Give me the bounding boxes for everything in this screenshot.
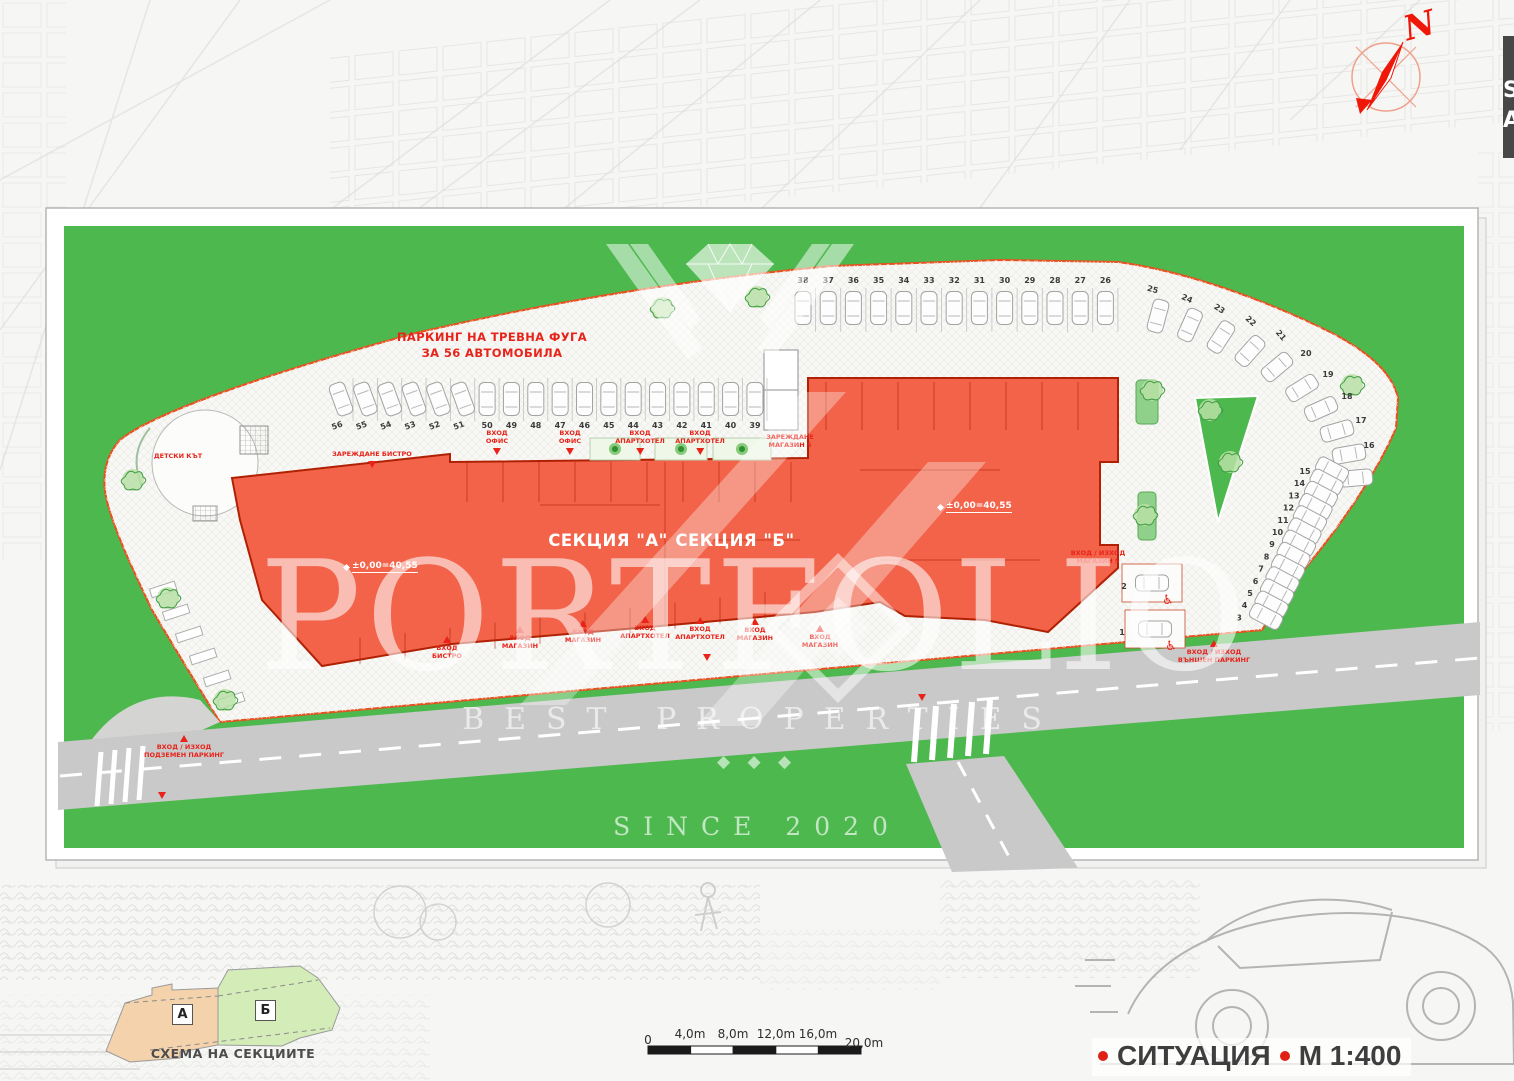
svg-text:♿: ♿: [1162, 593, 1174, 608]
svg-text:33: 33: [923, 276, 934, 285]
drawing-scale: М 1:400: [1299, 1040, 1402, 1072]
svg-text:11: 11: [1277, 516, 1289, 525]
section-b-label: СЕКЦИЯ "Б": [675, 531, 794, 550]
svg-text:10: 10: [1272, 528, 1284, 537]
schema-section-a: А: [172, 1004, 193, 1025]
bullet-icon: [1280, 1051, 1290, 1061]
svg-text:37: 37: [823, 276, 834, 285]
entrance-marker-icon: [443, 636, 451, 643]
svg-text:42: 42: [676, 421, 687, 430]
entrance-marker-icon: [636, 448, 644, 455]
svg-text:30: 30: [999, 276, 1011, 285]
entrance-marker-icon: [493, 448, 501, 455]
entrance-marker-icon: [641, 616, 649, 623]
svg-text:35: 35: [873, 276, 885, 285]
entrance-label: ВХОД БИСТРО: [432, 636, 462, 661]
entrance-label: ВХОД АПАРТХОТЕЛ: [615, 430, 665, 455]
svg-text:5: 5: [1247, 589, 1253, 598]
svg-text:4: 4: [1242, 601, 1248, 610]
entrance-label: ВХОД МАГАЗИН: [565, 620, 601, 645]
site-plan-page: 5655545352515049484746454443424140393837…: [0, 0, 1514, 1081]
svg-text:34: 34: [898, 276, 910, 285]
section-a-label: СЕКЦИЯ "А": [548, 531, 667, 550]
svg-text:29: 29: [1024, 276, 1036, 285]
drawing-title: СИТУАЦИЯ: [1117, 1040, 1271, 1072]
entrance-label: ВХОД МАГАЗИН: [737, 618, 773, 643]
parking-note: ПАРКИНГ НА ТРЕВНА ФУГА ЗА 56 АВТОМОБИЛА: [397, 330, 587, 361]
elevation-flag-icon: [937, 503, 944, 510]
scale-label: 8,0m: [718, 1027, 749, 1041]
entrance-marker-icon: [816, 625, 824, 632]
compass-icon: [1352, 42, 1420, 114]
entrance-label: ВХОД АПАРТХОТЕЛ: [675, 617, 725, 642]
entrance-marker-icon: [158, 792, 166, 799]
entrance-marker-icon: [918, 694, 926, 701]
scale-label: 4,0m: [675, 1027, 706, 1041]
loading-shop5-label: ЗАРЕЖДАНЕ МАГАЗИН 5: [766, 434, 814, 450]
svg-text:1: 1: [1119, 628, 1125, 637]
shop5-entrance-label: ВХОД / ИЗХОД МАГАЗИН 5: [1071, 550, 1126, 566]
svg-text:8: 8: [1264, 552, 1270, 561]
elevation-mark: ±0,00=40,55: [938, 501, 1012, 513]
svg-text:26: 26: [1100, 276, 1112, 285]
svg-text:16: 16: [1363, 441, 1375, 450]
svg-text:13: 13: [1288, 491, 1299, 500]
svg-text:39: 39: [749, 421, 761, 430]
svg-text:12: 12: [1283, 504, 1294, 513]
entrance-marker-icon: [1210, 640, 1218, 647]
svg-text:7: 7: [1258, 565, 1264, 574]
entrance-label: ВХОД АПАРТХОТЕЛ: [620, 616, 670, 641]
bullet-icon: [1098, 1051, 1108, 1061]
svg-text:27: 27: [1075, 276, 1086, 285]
entrance-marker-icon: [368, 461, 376, 468]
svg-text:45: 45: [603, 421, 615, 430]
entrance-marker-icon: [579, 620, 587, 627]
svg-text:32: 32: [949, 276, 960, 285]
svg-text:9: 9: [1269, 540, 1275, 549]
svg-text:31: 31: [974, 276, 986, 285]
svg-text:20: 20: [1300, 349, 1312, 358]
kids-area-label: ДЕТСКИ КЪТ: [154, 453, 202, 461]
svg-text:40: 40: [725, 421, 737, 430]
entrance-marker-icon: [703, 654, 711, 661]
scale-bar: [648, 1046, 861, 1054]
elevation-flag-icon: [343, 563, 350, 570]
scale-label: 16,0m: [799, 1027, 837, 1041]
edge-tab: S A: [1503, 36, 1514, 158]
svg-text:3: 3: [1236, 613, 1242, 622]
svg-text:18: 18: [1341, 392, 1353, 401]
scale-label: 0: [644, 1033, 652, 1047]
elevation-mark: ±0,00=40,55: [344, 561, 418, 573]
schema-caption: СХЕМА НА СЕКЦИИТЕ: [151, 1046, 315, 1061]
entrance-marker-icon: [696, 617, 704, 624]
scale-label: 12,0m: [757, 1027, 795, 1041]
svg-text:♿: ♿: [1165, 639, 1177, 654]
svg-text:48: 48: [530, 421, 542, 430]
entrance-label: ВХОД АПАРТХОТЕЛ: [675, 430, 725, 455]
outdoor-parking-label: ВХОД / ИЗХОД ВЪНШЕН ПАРКИНГ: [1178, 640, 1250, 665]
title-block: СИТУАЦИЯ М 1:400: [1092, 1038, 1411, 1076]
loading-bistro-label: ЗАРЕЖДАНЕ БИСТРО: [332, 451, 412, 468]
entrance-marker-icon: [751, 618, 759, 625]
svg-text:19: 19: [1322, 370, 1334, 379]
entrance-marker-icon: [566, 448, 574, 455]
schema-section-b: Б: [255, 1000, 276, 1021]
entrance-marker-icon: [696, 448, 704, 455]
entrance-label: ВХОД МАГАЗИН: [802, 625, 838, 650]
svg-text:14: 14: [1294, 479, 1306, 488]
scale-label: 20,0m: [845, 1036, 883, 1050]
svg-text:15: 15: [1299, 467, 1311, 476]
entrance-marker-icon: [516, 626, 524, 633]
svg-text:6: 6: [1253, 577, 1259, 586]
svg-text:43: 43: [652, 421, 663, 430]
entrance-label: ВХОД ОФИС: [486, 430, 508, 455]
svg-text:2: 2: [1121, 582, 1127, 591]
svg-text:38: 38: [797, 276, 809, 285]
entrance-marker-icon: [180, 735, 188, 742]
svg-text:28: 28: [1049, 276, 1061, 285]
underground-parking-label: ВХОД / ИЗХОД ПОДЗЕМЕН ПАРКИНГ: [144, 735, 224, 760]
entrance-label: ВХОД ОФИС: [559, 430, 581, 455]
svg-text:17: 17: [1355, 416, 1366, 425]
entrance-label: ВХОД МАГАЗИН: [502, 626, 538, 651]
svg-text:36: 36: [848, 276, 860, 285]
